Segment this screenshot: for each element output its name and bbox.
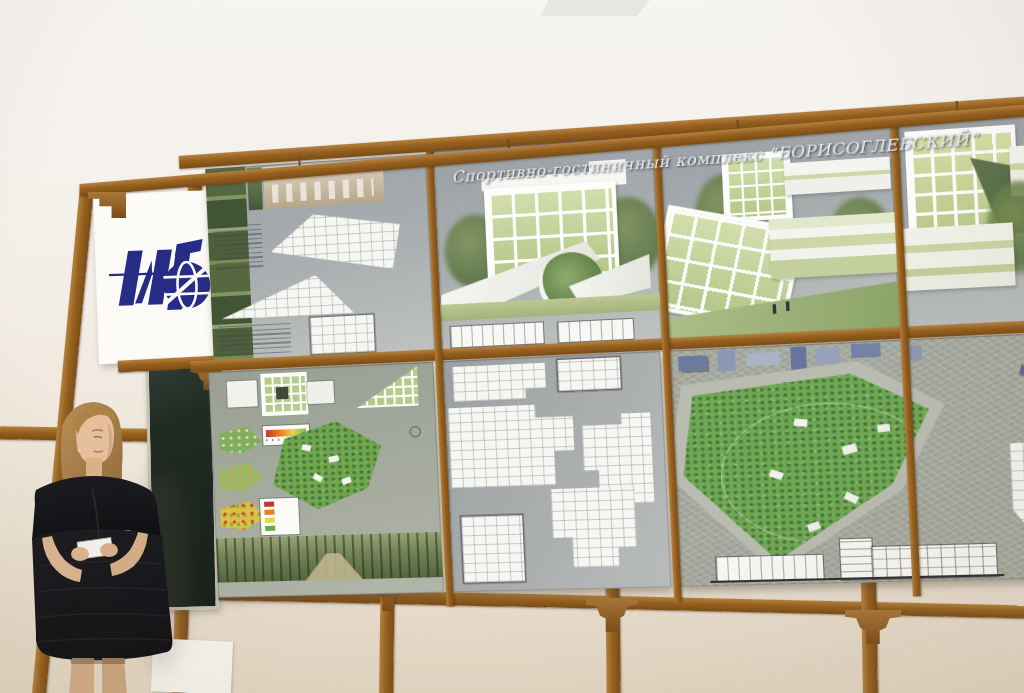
compass-mark bbox=[409, 426, 421, 438]
legend-row-yellow bbox=[265, 518, 275, 523]
floor-plan-1 bbox=[452, 363, 546, 402]
hem-shadow bbox=[70, 658, 126, 664]
elevation-triangle-grid bbox=[355, 367, 418, 408]
analysis-parcel-green bbox=[219, 426, 262, 454]
parcel-building-3 bbox=[312, 473, 323, 483]
pale-green-slab bbox=[769, 212, 898, 279]
presenter-woman bbox=[22, 396, 192, 693]
elevation-door bbox=[276, 387, 289, 400]
floor-plan-small bbox=[310, 315, 375, 355]
elevation-grid-square bbox=[260, 372, 308, 416]
interior-photo-chairs bbox=[272, 178, 374, 203]
city-block-1 bbox=[678, 355, 707, 371]
parcel-building-4 bbox=[341, 476, 352, 485]
legend-row-orange bbox=[264, 510, 274, 515]
ceiling-patch bbox=[540, 0, 650, 16]
hand-right bbox=[100, 543, 118, 557]
hand-left bbox=[71, 547, 89, 561]
legend-color-rows bbox=[260, 498, 300, 536]
section-drawing-tower bbox=[840, 538, 874, 579]
annotation-text-2 bbox=[218, 323, 291, 359]
band-building bbox=[902, 222, 1016, 291]
city-block-3 bbox=[746, 352, 780, 366]
presentation-boards: Спортивно-гостиничный комплекс “БОРИСОГЛ… bbox=[185, 103, 1024, 600]
city-block-6 bbox=[851, 343, 881, 358]
floor-plan-3 bbox=[448, 403, 576, 488]
panel-bottom-left bbox=[208, 362, 443, 598]
legend-row-red bbox=[264, 501, 274, 506]
panel-bottom-center bbox=[439, 351, 671, 592]
annotation-text-1 bbox=[214, 224, 264, 273]
floor-plan-5 bbox=[461, 515, 525, 583]
city-block-5 bbox=[815, 347, 841, 365]
forest-photo-strip bbox=[216, 532, 443, 583]
section-drawing-left bbox=[716, 555, 824, 581]
panel-bottom-right bbox=[667, 328, 1024, 587]
site-drawing-2 bbox=[558, 319, 634, 342]
floor-plan-triangular-1 bbox=[269, 209, 402, 276]
analysis-parcel-warm bbox=[220, 501, 265, 531]
white-slab bbox=[784, 157, 891, 196]
panel-top-left bbox=[205, 154, 435, 362]
analysis-parcel-mid bbox=[218, 463, 263, 493]
elevation-wall bbox=[307, 381, 334, 404]
floor-plan-6 bbox=[551, 486, 638, 568]
earring bbox=[77, 448, 80, 451]
elevation-white bbox=[227, 380, 258, 407]
parcel-building-2 bbox=[328, 455, 339, 463]
city-block-2 bbox=[717, 350, 736, 372]
parcel-building-1 bbox=[301, 444, 311, 452]
city-block-4 bbox=[790, 346, 807, 370]
figure-1 bbox=[773, 304, 777, 314]
floor-plan-2 bbox=[557, 357, 621, 391]
legend-row-green bbox=[265, 526, 275, 531]
figure-2 bbox=[786, 301, 790, 311]
